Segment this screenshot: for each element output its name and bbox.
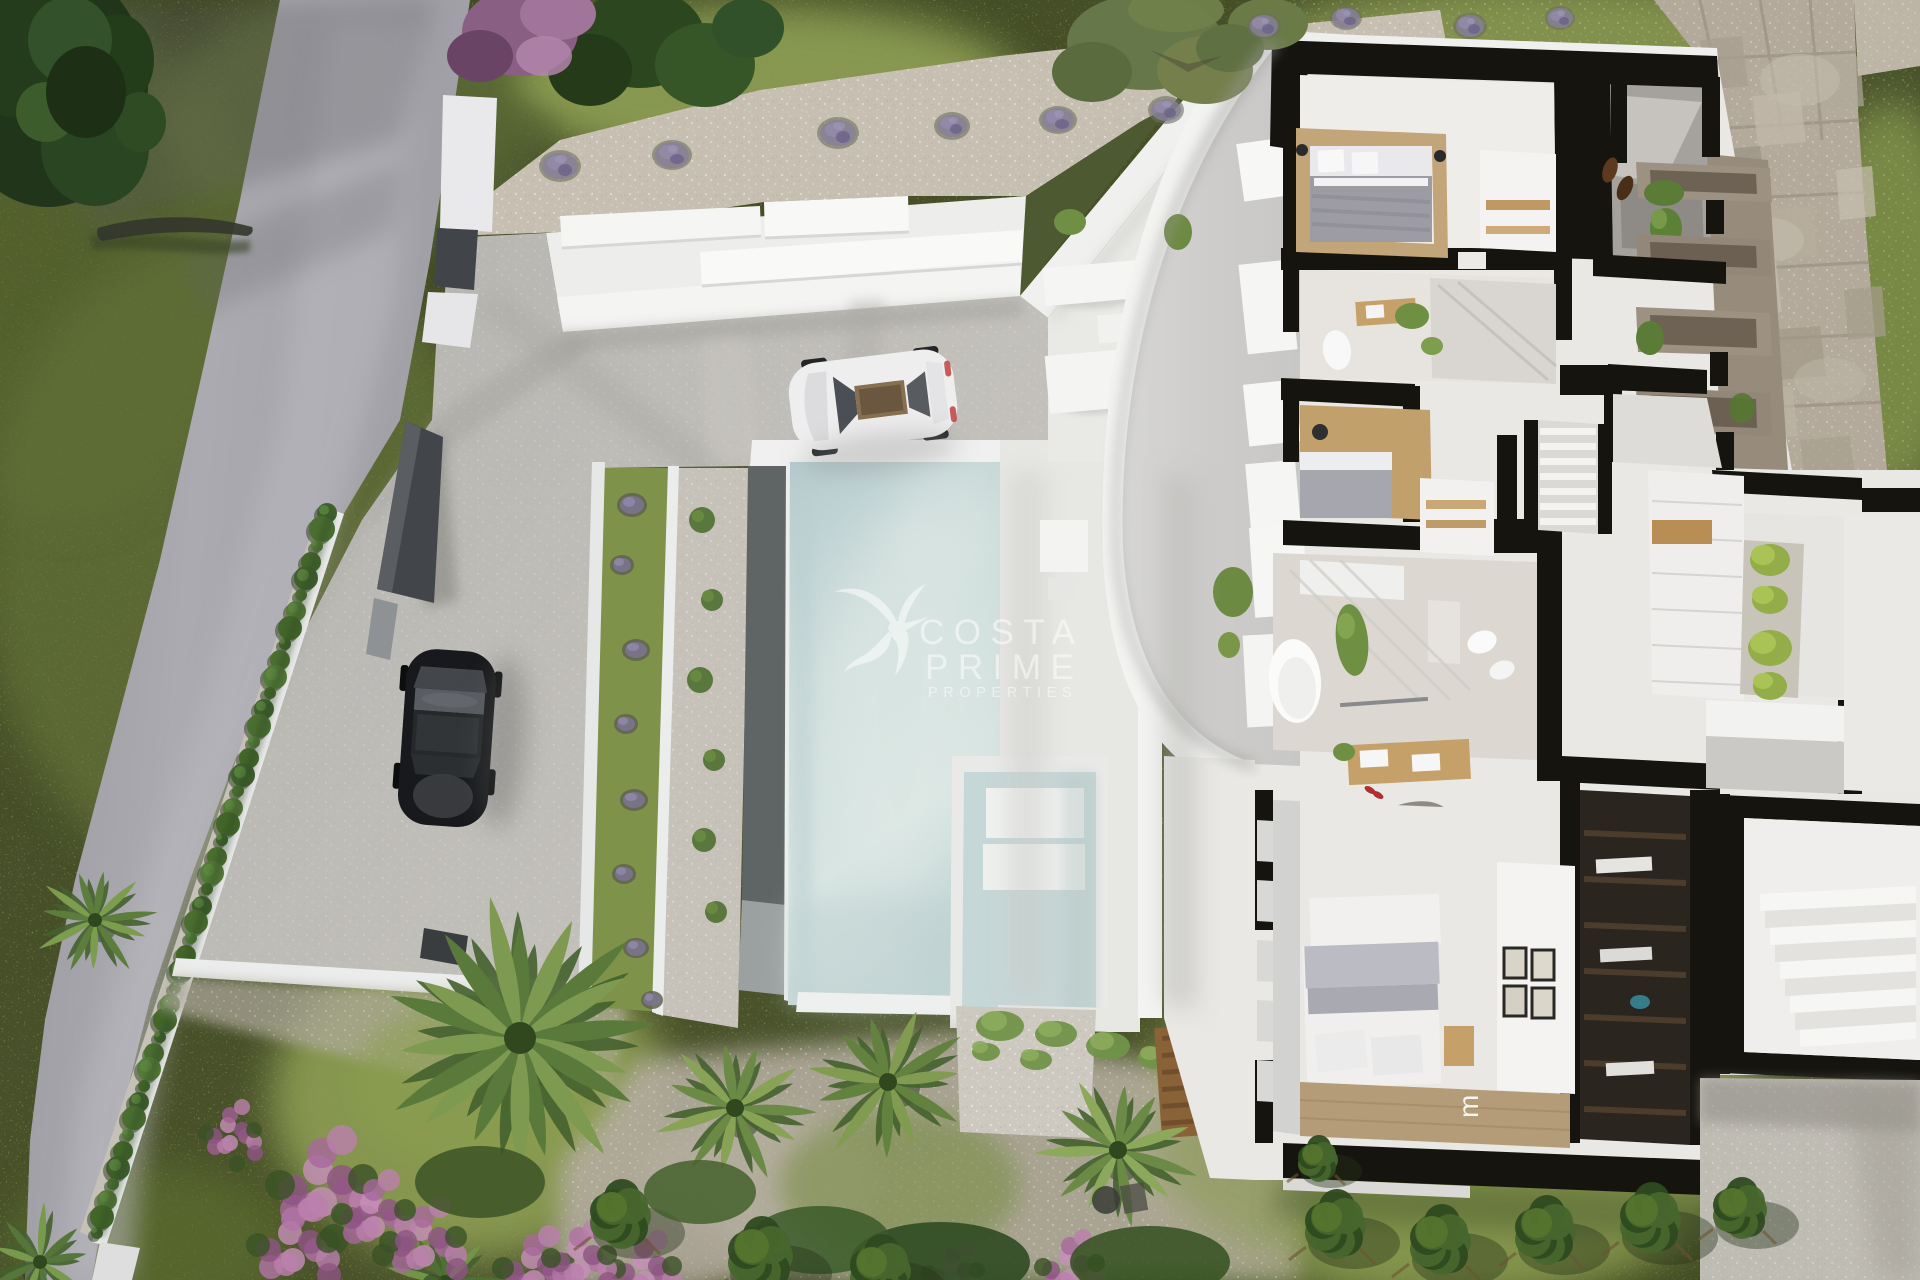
svg-text:m: m	[1453, 1095, 1484, 1118]
svg-text:PRIME: PRIME	[925, 648, 1083, 687]
svg-text:PROPERTIES: PROPERTIES	[928, 685, 1077, 701]
svg-text:COSTA: COSTA	[919, 613, 1084, 652]
